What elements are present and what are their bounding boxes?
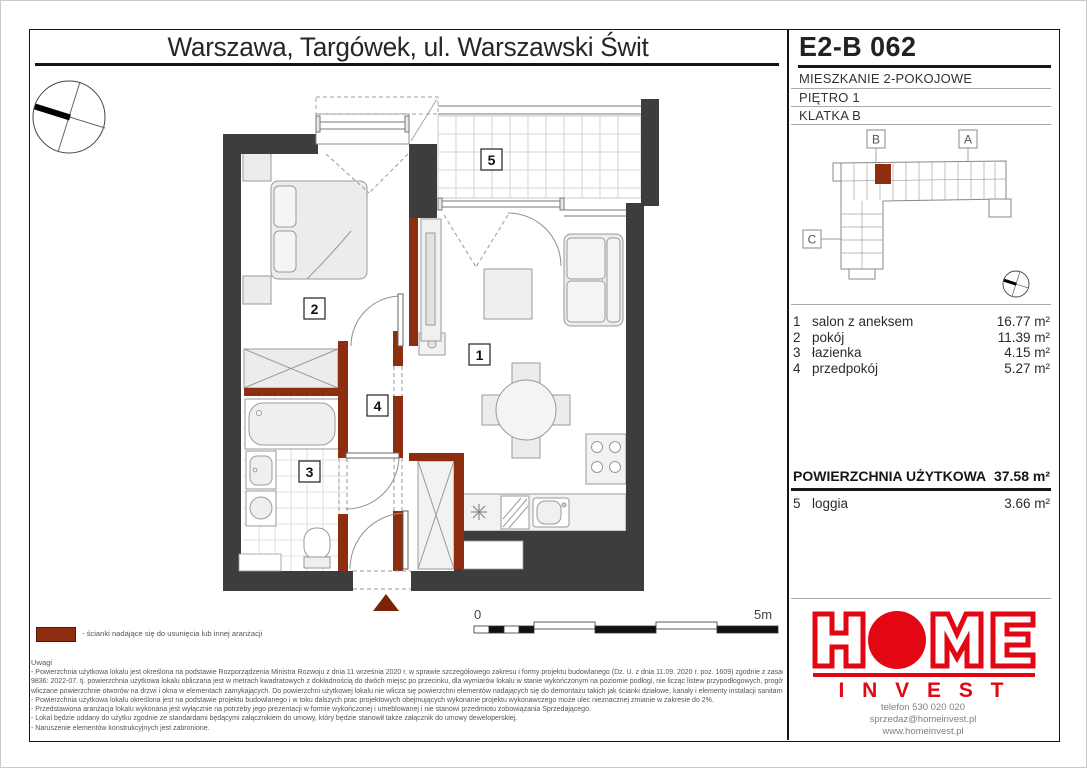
bathtub-drain (257, 411, 262, 416)
sink-tap (253, 468, 257, 472)
total-underline (791, 488, 1051, 491)
loggia-row: 5 loggia 3.66 m² (793, 496, 1050, 512)
rooms-table: 1 salon z aneksem 16.77 m² 2 pokój 11.39… (793, 314, 1050, 376)
room-name: salon z aneksem (812, 314, 997, 330)
separator (791, 304, 1051, 305)
room-name: pokój (812, 330, 998, 346)
sink-basin (537, 501, 561, 524)
nightstand (243, 276, 271, 304)
table-row: 2 pokój 11.39 m² (793, 330, 1050, 346)
table-row: 3 łazienka 4.15 m² (793, 345, 1050, 361)
page-title: Warszawa, Targówek, ul. Warszawski Świt (40, 32, 775, 63)
washer-drum (250, 497, 272, 519)
sofa-cushion (567, 281, 605, 322)
table-row: 4 przedpokój 5.27 m² (793, 361, 1050, 377)
faucet (562, 503, 566, 507)
panel-divider (787, 29, 789, 740)
bathtub-inner (249, 403, 335, 445)
unit-code: E2-B 062 (799, 31, 916, 63)
hob-symbol (471, 504, 487, 520)
room-area: 11.39 m² (998, 330, 1050, 346)
contact-block: telefon 530 020 020 sprzedaz@homeinvest.… (789, 702, 1057, 738)
room-label-4: 4 (374, 398, 382, 414)
room-name: loggia (812, 496, 1004, 512)
room-no: 2 (793, 330, 812, 346)
website: www.homeinvest.pl (789, 726, 1057, 738)
toilet-tank (304, 557, 330, 568)
dining-table (496, 380, 556, 440)
nightstand (243, 153, 271, 181)
marker-a: A (964, 133, 972, 147)
balcony-outline-dashed (316, 97, 438, 114)
wall-recess (239, 554, 281, 571)
floor-plan: 1 2 3 4 5 (211, 81, 681, 616)
sofa-back (607, 238, 620, 322)
note-line: - Powierzchnia użytkowa lokalu określona… (31, 696, 783, 705)
unit-type: MIESZKANIE 2-POKOJOWE (799, 71, 972, 86)
room-no: 3 (793, 345, 812, 361)
building-locator: B A C (791, 126, 1051, 306)
note-line: - Naruszenie elementów konstrukcyjnych j… (31, 724, 783, 733)
toilet-bowl (304, 528, 330, 559)
room-no: 4 (793, 361, 812, 377)
room-no: 1 (793, 314, 812, 330)
separator (791, 106, 1051, 107)
notes-heading: Uwagi (31, 658, 783, 667)
total-area-row: POWIERZCHNIA UŻYTKOWA 37.58 m² (793, 468, 1050, 484)
home-invest-logo: I N V E S T (811, 611, 1037, 703)
note-line: - Przedstawiona aranżacja lokalu wykonan… (31, 705, 783, 714)
room-label-5: 5 (488, 152, 496, 168)
scale-bar: 0 5m (456, 601, 786, 646)
room-label-2: 2 (311, 301, 319, 317)
separator (791, 88, 1051, 89)
total-area: 37.58 m² (994, 468, 1050, 484)
pillow (274, 186, 296, 227)
removable-wall-swatch (36, 627, 76, 642)
pillow (274, 231, 296, 272)
room-label-1: 1 (476, 347, 484, 363)
logo-underline (813, 673, 1035, 677)
scale-end-label: 5m (754, 607, 772, 622)
highlighted-unit (875, 164, 891, 184)
sofa-cushion (567, 238, 605, 279)
unit-floor: PIĘTRO 1 (799, 90, 860, 105)
room-area: 4.15 m² (1004, 345, 1050, 361)
entrance-arrow (373, 594, 399, 611)
room-name: łazienka (812, 345, 1004, 361)
invest-wordmark: I N V E S T (838, 679, 1009, 702)
note-line: wliczane powierzchnie otworów na drzwi i… (31, 687, 783, 696)
unit-staircase: KLATKA B (799, 108, 861, 123)
email: sprzedaz@homeinvest.pl (789, 714, 1057, 726)
room-area: 3.66 m² (1004, 496, 1050, 512)
marker-c: C (808, 233, 817, 247)
room-area: 16.77 m² (997, 314, 1050, 330)
table-row: 1 salon z aneksem 16.77 m² (793, 314, 1050, 330)
shaft-recess (463, 541, 523, 569)
room-label-3: 3 (306, 464, 314, 480)
title-underline (35, 63, 779, 66)
room-no: 5 (793, 496, 812, 512)
mini-compass-icon (1003, 271, 1029, 297)
room-area: 5.27 m² (1004, 361, 1050, 377)
home-logo-o (868, 611, 926, 669)
room-name: przedpokój (812, 361, 1004, 377)
note-line: - Powierzchnia użytkowa lokalu jest okre… (31, 668, 783, 677)
loggia-tiles (438, 116, 641, 198)
coffee-table (484, 269, 532, 319)
code-underline (798, 65, 1051, 68)
phone: telefon 530 020 020 (789, 702, 1057, 714)
tv-screen (426, 233, 435, 325)
total-label: POWIERZCHNIA UŻYTKOWA (793, 468, 986, 484)
separator (791, 124, 1051, 125)
notes-block: Uwagi - Powierzchnia użytkowa lokalu jes… (31, 658, 783, 733)
separator (791, 598, 1051, 599)
floorplan-card: Warszawa, Targówek, ul. Warszawski Świt (0, 0, 1087, 768)
stove (586, 434, 626, 484)
legend-text: - ścianki nadające się do usunięcia lub … (82, 629, 262, 638)
compass-icon (29, 77, 111, 159)
marker-b: B (872, 133, 880, 147)
note-line: 9836: 2022-07. tj. powierzchnia użytkowa… (31, 677, 783, 686)
scale-start-label: 0 (474, 607, 481, 622)
note-line: - Lokal będzie oddany do użytku zgodnie … (31, 714, 783, 723)
